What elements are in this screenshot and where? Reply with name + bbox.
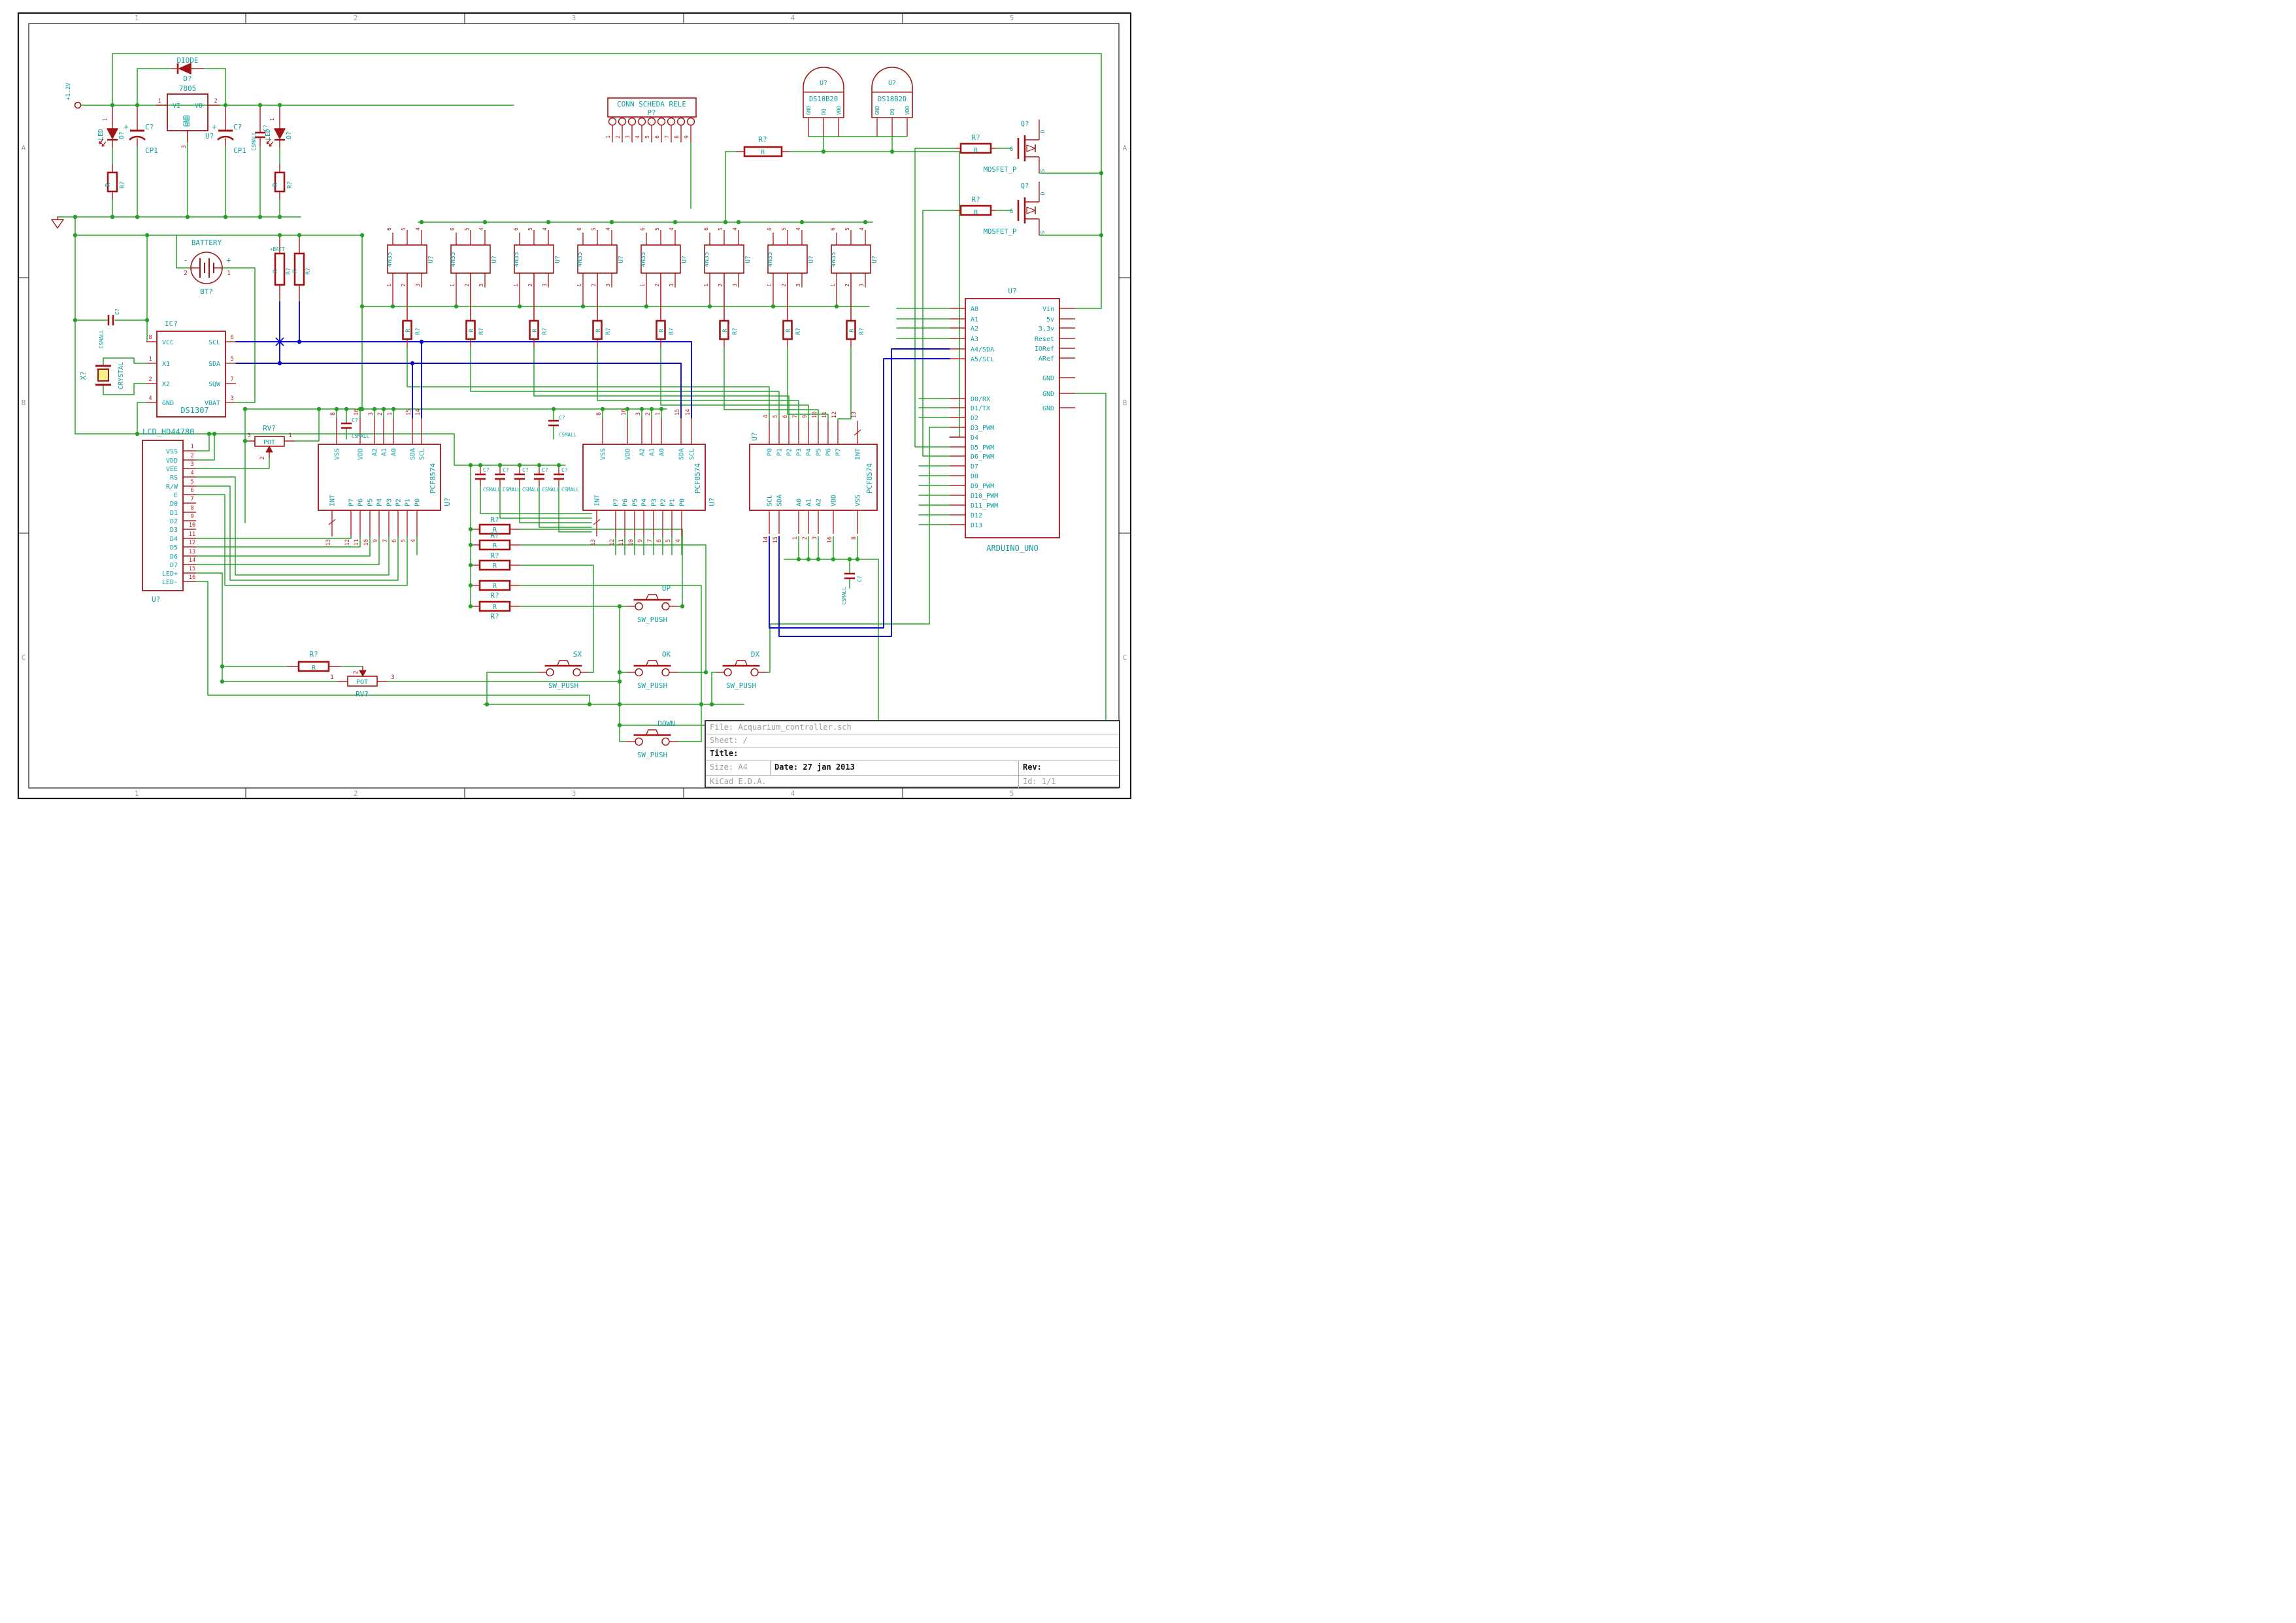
- ic-pin-number: 10: [363, 539, 370, 546]
- res-value: R: [786, 329, 792, 333]
- opto-pin-number: 3: [859, 284, 865, 287]
- led-body: [107, 129, 118, 139]
- ic-pin-name: P4: [806, 448, 813, 456]
- label: 1: [288, 433, 291, 439]
- sensor-ref: U?: [888, 80, 896, 87]
- opto-name: 4N35: [576, 252, 584, 267]
- junction-dot: [618, 604, 622, 608]
- junction-dot: [546, 220, 550, 224]
- ic-pin-number: 6: [230, 335, 233, 341]
- switch-name: OK: [662, 650, 671, 659]
- junction-dot: [478, 463, 482, 467]
- opto-pin-number: 5: [464, 227, 470, 231]
- ic-pin-number: 11: [822, 412, 828, 418]
- wire: [923, 210, 956, 456]
- sheet-col-label: 5: [1010, 789, 1014, 798]
- label: DIODE: [176, 56, 198, 65]
- junction-dot: [391, 304, 395, 308]
- wire: [196, 457, 269, 468]
- label: PCF8574: [693, 463, 702, 493]
- resistor: [275, 172, 284, 191]
- junction-dot: [807, 557, 810, 561]
- junction-dot: [848, 557, 852, 561]
- wire: [559, 486, 591, 532]
- opto-ref: U?: [681, 255, 688, 263]
- ic-pin-number: 14: [685, 409, 691, 416]
- label: R: [273, 269, 279, 273]
- wire: [196, 434, 209, 451]
- connector-pin-circle: [609, 118, 616, 125]
- wire: [712, 672, 715, 704]
- junction-dot: [220, 680, 224, 683]
- ic-pin-number: 3: [230, 395, 233, 402]
- ic-pin-name: Vin: [1042, 306, 1054, 313]
- sheet-col-label: 3: [572, 789, 576, 798]
- junction-dot: [680, 604, 684, 608]
- junction-dot: [278, 233, 282, 237]
- opto-pin-number: 4: [605, 227, 611, 231]
- switch-value: SW_PUSH: [548, 681, 578, 690]
- title-block-id: Id: 1/1: [1018, 776, 1119, 788]
- sensor-pin-name: GND: [874, 105, 880, 115]
- opto-pin-number: 4: [542, 227, 548, 231]
- opto-pin-number: 1: [513, 284, 519, 287]
- ic-pin-name: R/W: [166, 484, 178, 491]
- sensor-ref: U?: [820, 80, 827, 87]
- fet-pin-label: G: [1010, 146, 1013, 153]
- sheet-col-label: 1: [135, 789, 139, 798]
- sensor-name: DS18B20: [809, 95, 838, 103]
- switch-contact: [724, 669, 731, 676]
- ic-pin-number: 13: [325, 539, 332, 546]
- ic-pin-number: 16: [189, 574, 195, 581]
- sensor-pin-name: DQ: [890, 108, 895, 115]
- opto-pin-number: 6: [640, 227, 646, 231]
- junction-dot: [243, 407, 247, 411]
- opto-ref: U?: [871, 255, 878, 263]
- junction-dot: [699, 702, 703, 706]
- label: CRYSTAL: [118, 362, 125, 389]
- ic-pin-name: SDA: [678, 448, 686, 460]
- res-ref: R?: [859, 328, 865, 335]
- junction-dot: [618, 723, 622, 727]
- ic-pin-name: VDD: [831, 495, 838, 506]
- label: C?: [857, 576, 863, 582]
- label: RV?: [263, 424, 276, 433]
- label: LED: [265, 129, 272, 140]
- junction-dot: [552, 407, 556, 411]
- label: LED: [97, 129, 105, 140]
- label: BT?: [200, 287, 213, 296]
- junction-dot: [243, 439, 247, 443]
- connector-pin-number: 2: [615, 135, 621, 139]
- connector-pin-number: 8: [674, 135, 680, 139]
- connector-pin-circle: [668, 118, 675, 125]
- ic-pin-number: 2: [377, 412, 384, 416]
- ic-pin-name: P3: [796, 448, 803, 456]
- junction-dot: [212, 432, 216, 436]
- junction-dot: [469, 463, 473, 467]
- opto-pin-number: 6: [830, 227, 836, 231]
- label: DS1307: [180, 406, 208, 415]
- junction-dot: [771, 304, 775, 308]
- opto-ref: U?: [427, 255, 435, 263]
- pot-wiper: [266, 446, 273, 452]
- connector-pin-circle: [658, 118, 665, 125]
- sheet-row-label: A: [1123, 144, 1127, 152]
- title-block-title: Title:: [706, 747, 1119, 761]
- label: U?: [1008, 287, 1016, 295]
- ic-pin-name: P7: [613, 499, 620, 506]
- junction-dot: [724, 220, 727, 224]
- res-ref: R?: [490, 591, 499, 600]
- opto-ref: U?: [491, 255, 498, 263]
- ic-pin-name: VEE: [166, 466, 178, 473]
- ic-pin-name: GND: [182, 115, 190, 127]
- ic-pin-number: 8: [148, 335, 152, 341]
- ic-pin-number: 1: [148, 356, 152, 363]
- ic-pin-number: 6: [782, 415, 789, 418]
- wire: [790, 152, 959, 437]
- ic-pin-number: 15: [189, 566, 195, 572]
- ic-pin-name: A1: [381, 448, 388, 456]
- sheet-col-label: 2: [354, 789, 358, 798]
- opto-pin-number: 5: [591, 227, 597, 231]
- switch-value: SW_PUSH: [726, 681, 756, 690]
- ic-pin-name: SCL: [767, 495, 774, 506]
- wire: [75, 434, 565, 465]
- res-ref: R?: [542, 328, 548, 335]
- switch-knob: [557, 661, 569, 665]
- opto-name: 4N35: [386, 252, 393, 267]
- label: U?: [708, 497, 716, 506]
- junction-dot: [469, 543, 473, 547]
- ic-pin-number: 13: [851, 412, 857, 418]
- ic-pin-name: VO: [195, 103, 203, 110]
- junction-dot: [110, 103, 114, 107]
- bus-junction-dot: [410, 361, 414, 365]
- sheet-row-label: A: [22, 144, 26, 152]
- wire: [137, 69, 171, 105]
- ic-pin-name: P4: [376, 499, 384, 506]
- ic-pin-number: 1: [655, 412, 661, 416]
- ic-pin-number: 3: [812, 536, 818, 540]
- opto-pin-number: 6: [386, 227, 392, 231]
- opto-pin-number: 5: [401, 227, 407, 231]
- ic-pin-name: D0: [170, 500, 178, 508]
- junction-dot: [297, 233, 301, 237]
- opto-body: [768, 245, 807, 273]
- res-value: R: [493, 604, 497, 611]
- ic-pin-number: 14: [415, 409, 422, 416]
- ic-pin-name: P2: [660, 499, 667, 506]
- switch-knob: [646, 730, 658, 734]
- opto-pin-number: 1: [450, 284, 456, 287]
- ic-pin-number: 8: [330, 412, 337, 416]
- cap-ref: C?: [522, 467, 529, 473]
- label: LCD_HD44780: [142, 427, 194, 436]
- ic-pin-name: A2: [639, 448, 646, 456]
- connector-pin-number: 1: [605, 135, 611, 139]
- title-block-date: Date: 27 jan 2013: [770, 761, 1018, 775]
- opto-pin-number: 6: [513, 227, 519, 231]
- ic-pin-name: D6_PWM: [971, 453, 994, 461]
- connector-pin-circle: [678, 118, 685, 125]
- fet-pin-label: D: [1040, 129, 1046, 133]
- fet-value: MOSFET_P: [984, 228, 1017, 236]
- switch-contact: [751, 669, 758, 676]
- opto-pin-number: 5: [781, 227, 787, 231]
- schematic-page: 1122334455AABBCCVI1VO2GND3GNDVCC8X11X22G…: [0, 0, 1148, 811]
- label: U?: [750, 432, 759, 440]
- label: 2: [184, 270, 188, 277]
- opto-body: [705, 245, 744, 273]
- gnd-symbol: [52, 220, 63, 228]
- switch-name: SX: [573, 650, 582, 659]
- label: R?: [971, 195, 980, 204]
- opto-pin-number: 2: [781, 284, 787, 287]
- ic-pin-name: D9_PWM: [971, 483, 994, 490]
- ic-pin-name: A5/SCL: [971, 356, 994, 363]
- ic-pin-name: A1: [806, 499, 813, 506]
- junction-dot: [581, 304, 585, 308]
- opto-pin-number: 6: [767, 227, 773, 231]
- junction-dot: [890, 150, 894, 154]
- junction-dot: [863, 220, 867, 224]
- res-value: R: [532, 329, 539, 333]
- res-value: R: [722, 329, 729, 333]
- ic-pin-name: D5: [170, 544, 178, 551]
- cap-value: CSMALL: [522, 487, 541, 493]
- junction-dot: [704, 670, 708, 674]
- fet-pin-label: S: [1040, 231, 1046, 234]
- opto-pin-number: 1: [830, 284, 836, 287]
- connector-pin-number: 3: [625, 135, 631, 139]
- ic-pin-number: 13: [189, 549, 195, 555]
- junction-dot: [135, 432, 139, 436]
- ic-pin-number: 12: [344, 539, 351, 546]
- label: R: [974, 209, 978, 216]
- label: +1.2V: [65, 82, 72, 101]
- pot-wiper: [359, 670, 366, 676]
- junction-dot: [145, 318, 149, 322]
- ic-pin-name: GND: [1042, 391, 1054, 398]
- ic-pin-name: P0: [679, 499, 686, 506]
- label: CP1: [145, 146, 158, 155]
- label: C?: [114, 308, 120, 315]
- ic-pin-number: 1: [792, 536, 799, 540]
- connector-pin-circle: [648, 118, 656, 125]
- junction-dot: [220, 664, 224, 668]
- terminal: [75, 103, 81, 108]
- res-ref: R?: [732, 328, 739, 335]
- ic-pin-number: 7: [647, 539, 654, 542]
- ic-pin-number: 7: [230, 376, 233, 383]
- ic-pin-name: A0: [391, 448, 398, 456]
- sheet-row-label: B: [1123, 399, 1127, 407]
- ic-pin-name: VSS: [166, 448, 178, 455]
- opto-pin-number: 5: [718, 227, 724, 231]
- ic-pin-number: 9: [190, 514, 193, 520]
- junction-dot: [831, 557, 835, 561]
- connector-pin-number: 6: [654, 135, 660, 139]
- label: R?: [286, 181, 293, 188]
- ic-pin-name: E: [174, 492, 178, 499]
- ic-pin-name: IORef: [1035, 346, 1054, 353]
- junction-dot: [610, 220, 614, 224]
- junction-dot: [360, 304, 364, 308]
- ic-pin-number: 5: [665, 539, 672, 542]
- switch-name: DOWN: [657, 719, 675, 728]
- cap-ref: C?: [503, 467, 509, 473]
- ic-pin-name: P7: [835, 448, 842, 456]
- wire: [520, 585, 701, 742]
- opto-pin-number: 3: [732, 284, 738, 287]
- cap-ref: C?: [561, 467, 568, 473]
- label: CSMALL: [841, 587, 847, 605]
- opto-pin-number: 2: [527, 284, 533, 287]
- ic-pin-name: P5: [816, 448, 823, 456]
- junction-dot: [258, 215, 262, 219]
- fet-pin-label: D: [1040, 191, 1046, 195]
- ic-pin-name: D8: [971, 473, 978, 480]
- opto-pin-number: 3: [605, 284, 611, 287]
- junction-dot: [420, 220, 424, 224]
- switch-name: DX: [751, 650, 760, 659]
- label: 1: [102, 118, 108, 121]
- fet-ref: Q?: [1021, 182, 1029, 190]
- junction-dot: [224, 215, 227, 219]
- junction-dot: [73, 215, 77, 219]
- ic-pin-name: 5v: [1046, 316, 1054, 323]
- wire: [724, 347, 818, 421]
- wire: [112, 54, 1101, 308]
- ic-pin-name: P0: [767, 448, 774, 456]
- res-ref: R?: [415, 328, 422, 335]
- ic-pin-name: D4: [170, 536, 178, 543]
- label: 2: [353, 670, 359, 674]
- ic-pin-number: 3: [181, 145, 188, 148]
- fet-pin-label: G: [1010, 208, 1013, 215]
- label: POT: [263, 439, 275, 446]
- label: U?: [205, 132, 214, 140]
- title-block-sheet: Sheet: /: [706, 734, 1119, 747]
- opto-name: 4N35: [513, 252, 520, 267]
- junction-dot: [382, 407, 386, 411]
- crystal-body: [98, 369, 108, 381]
- ic-pin-number: 2: [190, 453, 193, 459]
- opto-ref: U?: [554, 255, 561, 263]
- junction-dot: [816, 557, 820, 561]
- label: +BATT: [270, 246, 285, 252]
- ic-pin-name: D2: [971, 415, 978, 422]
- ic-pin-number: 6: [391, 539, 398, 542]
- ic-pin-name: GND: [1042, 375, 1054, 382]
- label: X?: [79, 371, 88, 380]
- ic-pin-name: D5_PWM: [971, 444, 994, 451]
- opto-name: 4N35: [450, 252, 457, 267]
- ic-pin-number: 4: [190, 470, 193, 476]
- label: -: [183, 255, 188, 265]
- ic-pin-name: P6: [622, 499, 629, 506]
- sheet-col-label: 4: [791, 14, 795, 22]
- opto-body: [641, 245, 680, 273]
- label: R?: [971, 133, 980, 142]
- ic-pin-name: INT: [329, 495, 337, 506]
- resistor: [275, 254, 284, 285]
- connector-pin-circle: [688, 118, 695, 125]
- ic-pin-name: 3,3v: [1039, 325, 1054, 333]
- opto-pin-number: 1: [640, 284, 646, 287]
- junction-dot: [469, 563, 473, 567]
- junction-dot: [710, 702, 714, 706]
- ic-pin-number: 7: [382, 539, 389, 542]
- sensor-name: DS18B20: [878, 95, 907, 103]
- res-value: R: [849, 329, 856, 333]
- label: +: [124, 122, 128, 131]
- ic-pin-number: 13: [590, 539, 597, 546]
- switch-contact: [662, 603, 669, 610]
- cap-value: CSMALL: [483, 487, 501, 493]
- label: D?: [286, 131, 293, 139]
- sensor-pin-name: GND: [806, 105, 812, 115]
- ic-pin-name: D11_PWM: [971, 502, 998, 510]
- junction-dot: [469, 604, 473, 608]
- label: D?: [118, 131, 125, 139]
- label: +: [226, 255, 231, 265]
- ic-pin-number: 1: [190, 444, 193, 450]
- ic-pin-name: A0: [659, 448, 666, 456]
- ic-pin-number: 15: [674, 409, 681, 416]
- ic-pin-number: 14: [189, 557, 195, 564]
- wire: [196, 536, 351, 538]
- label: C?: [559, 415, 565, 421]
- opto-pin-number: 6: [703, 227, 709, 231]
- opto-name: 4N35: [767, 252, 774, 267]
- ic-pin-name: A0: [971, 306, 978, 313]
- ic-pin-name: D2: [170, 518, 178, 525]
- connector-pin-number: 9: [684, 135, 690, 139]
- ic-pin-name: D1: [170, 510, 178, 517]
- opto-pin-number: 5: [654, 227, 660, 231]
- opto-name: 4N35: [640, 252, 647, 267]
- switch-contact: [662, 669, 669, 676]
- ic-pin-number: 5: [773, 415, 779, 418]
- label: RV?: [356, 690, 369, 698]
- label: R?: [286, 268, 292, 274]
- label: R: [974, 147, 978, 154]
- label: 1: [269, 118, 275, 121]
- ic-pin-number: 10: [628, 539, 635, 546]
- label: R?: [119, 181, 126, 188]
- opto-pin-number: 1: [386, 284, 392, 287]
- junction-dot: [391, 407, 395, 411]
- ic-pin-name: D3: [170, 527, 178, 534]
- label: PCF8574: [429, 463, 437, 493]
- opto-pin-number: 2: [401, 284, 407, 287]
- junction-dot: [518, 304, 522, 308]
- ic-pin-number: 4: [675, 539, 682, 542]
- ic-pin-name: D13: [971, 522, 982, 529]
- ic-pin-name: A2: [816, 499, 823, 506]
- ic-pin-number: 12: [609, 539, 616, 546]
- opto-pin-number: 5: [844, 227, 850, 231]
- ic-pin-name: P2: [786, 448, 793, 456]
- opto-ref: U?: [744, 255, 752, 263]
- fet-ref: Q?: [1021, 120, 1029, 128]
- ic-pin-name: P1: [669, 499, 676, 506]
- switch-value: SW_PUSH: [637, 681, 667, 690]
